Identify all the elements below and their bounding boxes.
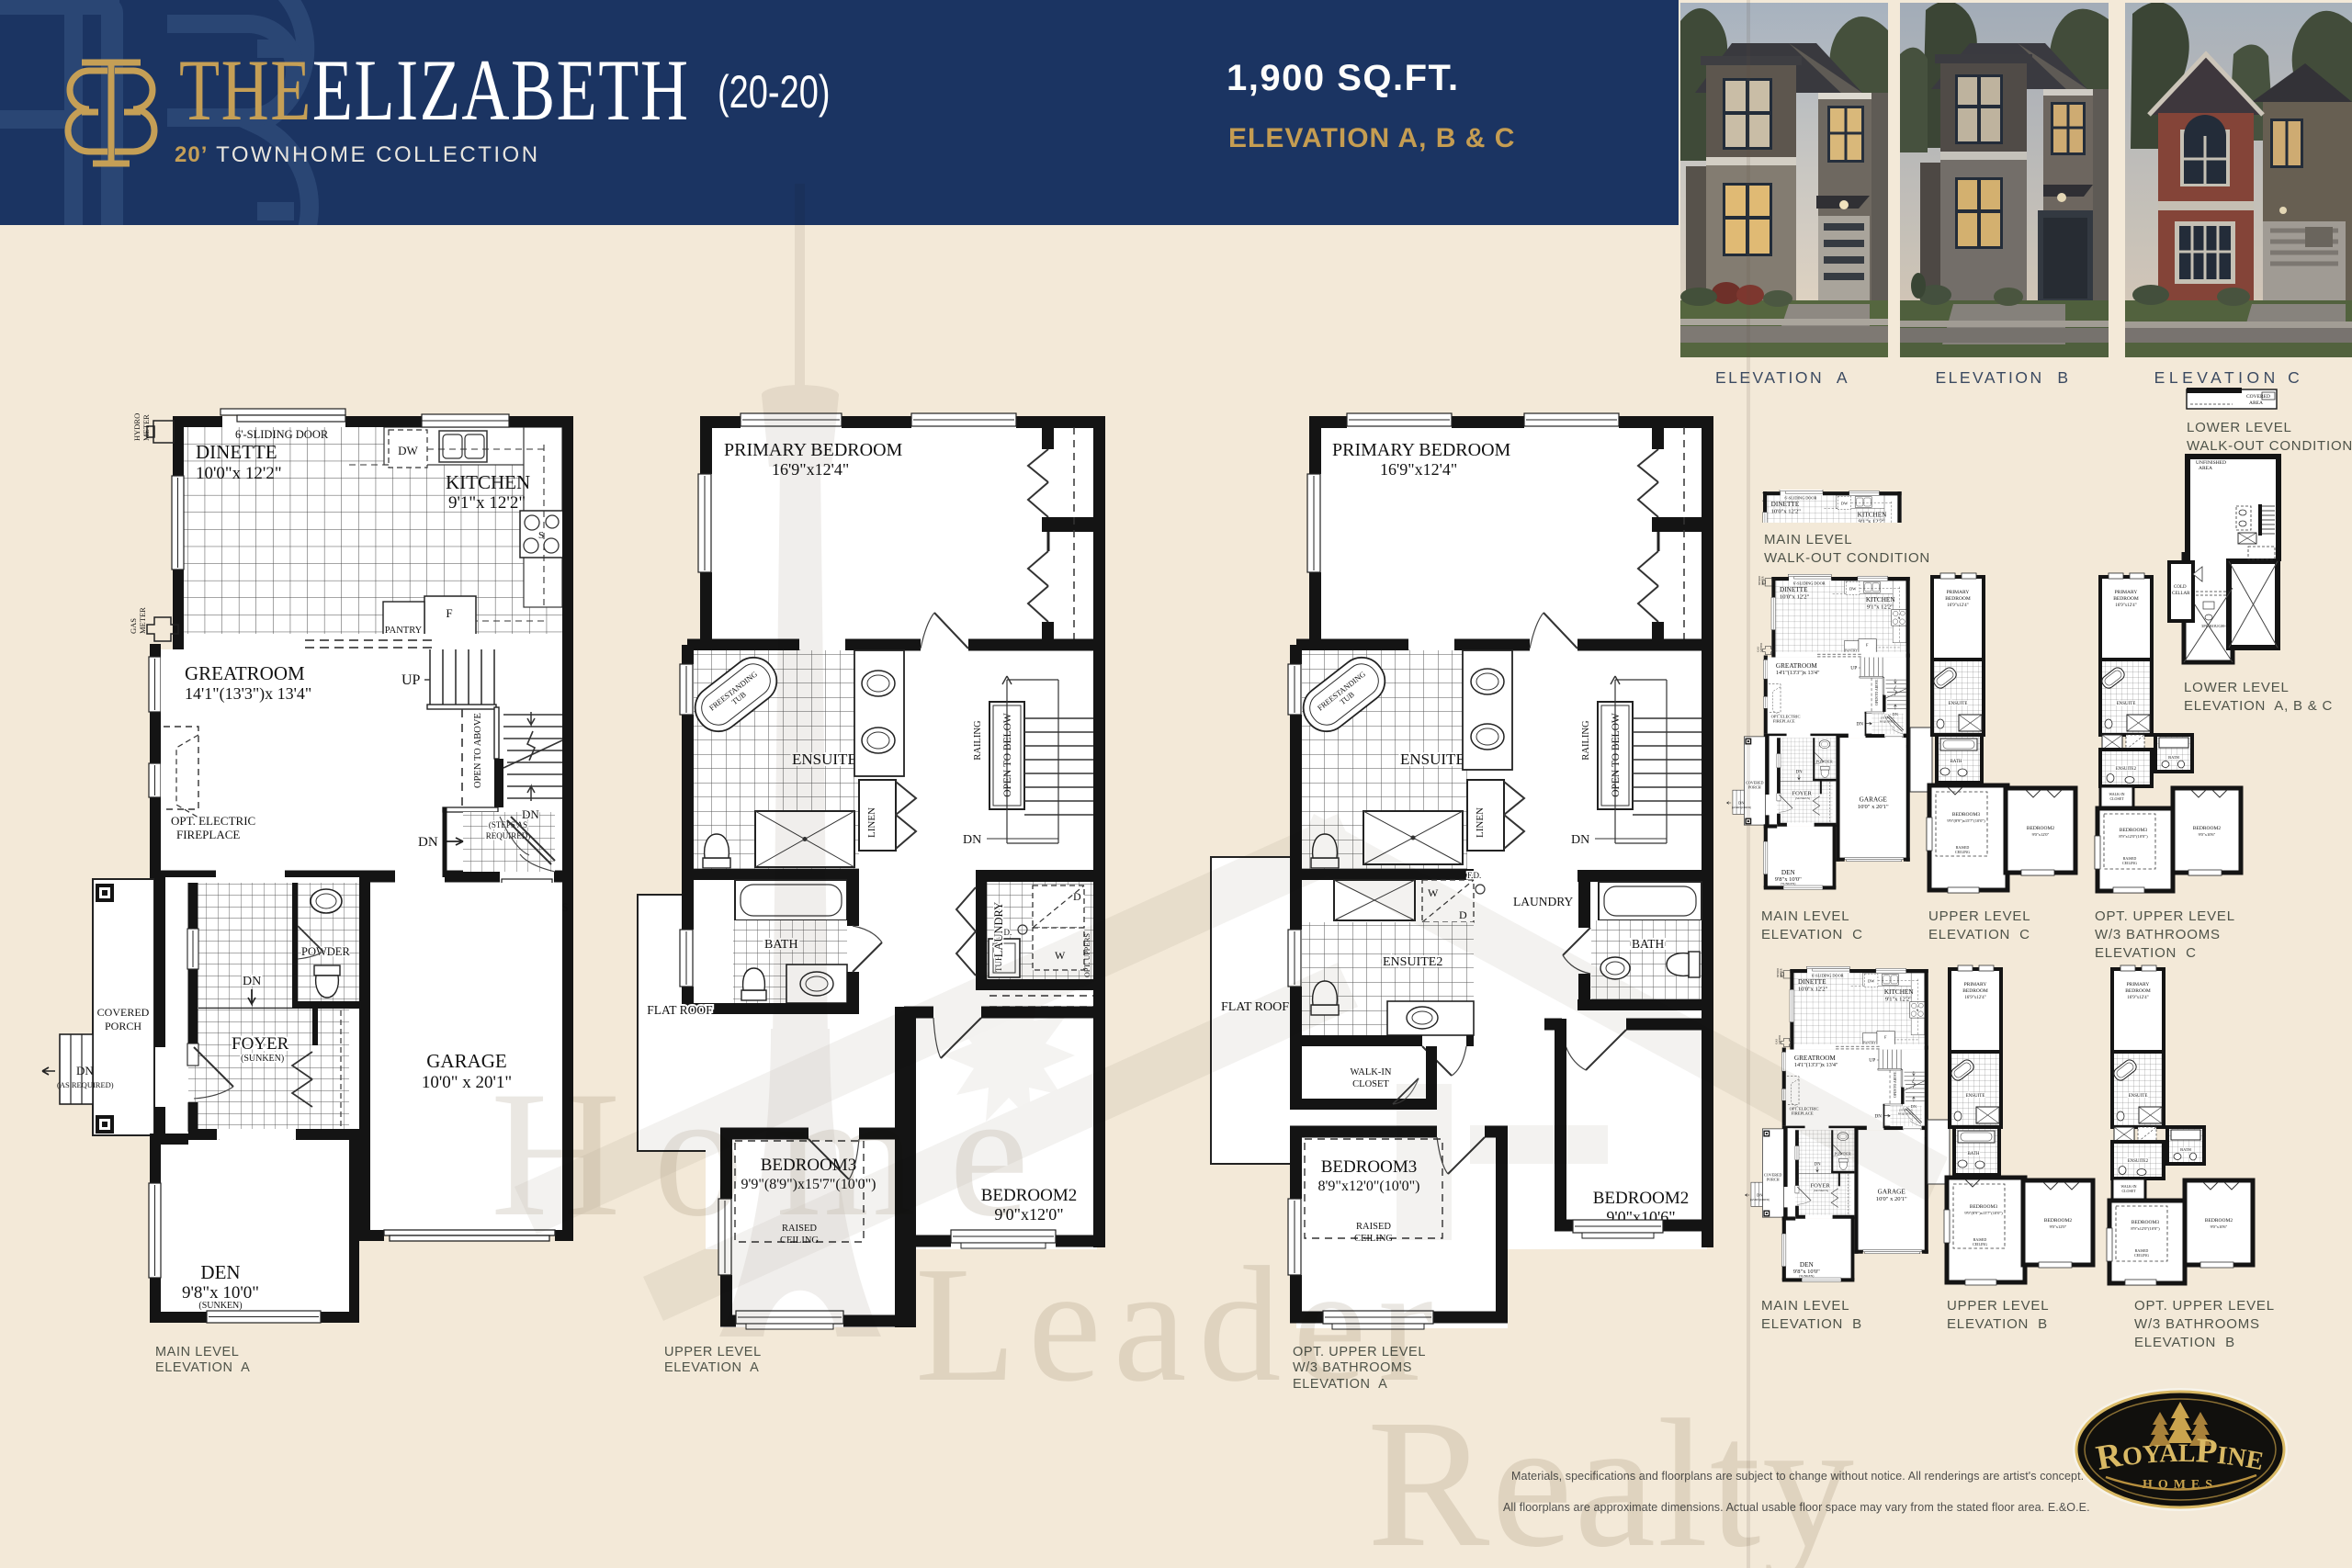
svg-text:Leader: Leader xyxy=(915,1233,1433,1416)
svg-text:Realty: Realty xyxy=(1367,1382,1854,1568)
